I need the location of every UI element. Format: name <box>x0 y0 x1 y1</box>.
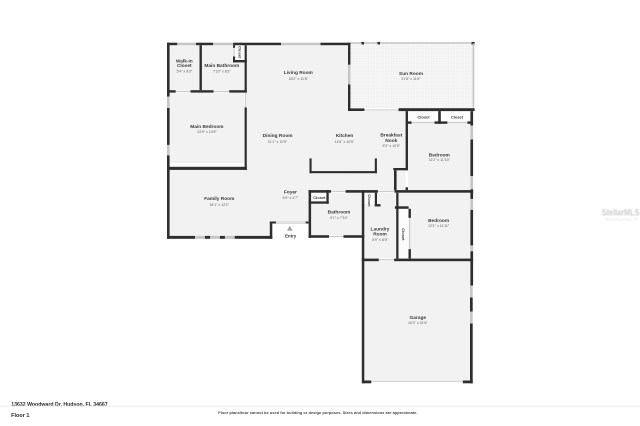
svg-text:18'1" x 12'1": 18'1" x 12'1" <box>209 203 229 207</box>
svg-text:StellarMLS: StellarMLS <box>605 217 638 222</box>
svg-text:9'1" x 7'10": 9'1" x 7'10" <box>330 216 348 220</box>
svg-text:Entry: Entry <box>285 233 297 238</box>
svg-text:11'1" x 10'9": 11'1" x 10'9" <box>268 140 288 144</box>
svg-text:Closet: Closet <box>451 115 464 120</box>
svg-text:5'4" x 8'3": 5'4" x 8'3" <box>176 70 192 74</box>
svg-text:Closet: Closet <box>237 46 242 59</box>
svg-text:13632 Woodward Dr, Hudson, FL: 13632 Woodward Dr, Hudson, FL 34667 <box>11 402 108 408</box>
svg-text:Dining Room: Dining Room <box>263 133 293 139</box>
svg-text:Floor 1: Floor 1 <box>11 413 29 419</box>
svg-text:Kitchen: Kitchen <box>336 133 354 139</box>
svg-text:Main Bathroom: Main Bathroom <box>204 63 239 69</box>
svg-text:Closet: Closet <box>417 115 430 120</box>
svg-text:11'2" x 11'10": 11'2" x 11'10" <box>429 158 451 162</box>
svg-text:Sun Room: Sun Room <box>399 71 423 77</box>
svg-text:Closet: Closet <box>313 195 326 200</box>
svg-text:12'1" x 11'11": 12'1" x 11'11" <box>428 224 450 228</box>
svg-text:Floor plans/tour cannot be use: Floor plans/tour cannot be used for buil… <box>218 411 417 415</box>
svg-text:Room: Room <box>373 231 387 237</box>
svg-text:Living Room: Living Room <box>284 70 313 76</box>
svg-text:Laundry: Laundry <box>371 226 390 232</box>
svg-text:13'9" x 13'5": 13'9" x 13'5" <box>197 130 217 134</box>
svg-text:5'3" x 10'9": 5'3" x 10'9" <box>382 144 400 148</box>
svg-text:Closet: Closet <box>177 63 192 69</box>
svg-text:Closet: Closet <box>401 228 406 241</box>
svg-text:Family Room: Family Room <box>204 196 234 202</box>
svg-text:Nook: Nook <box>385 138 397 144</box>
svg-text:5'9" x 8'9": 5'9" x 8'9" <box>372 238 388 242</box>
svg-text:Breakfast: Breakfast <box>380 133 402 139</box>
svg-text:11'6" x 10'9": 11'6" x 10'9" <box>335 140 355 144</box>
svg-text:StellarMLS: StellarMLS <box>602 207 640 217</box>
svg-text:6'9" x 4'7": 6'9" x 4'7" <box>283 196 299 200</box>
svg-text:18'2" x 11'8": 18'2" x 11'8" <box>289 77 309 81</box>
svg-text:Foyer: Foyer <box>284 189 297 195</box>
svg-text:Bedroom: Bedroom <box>428 218 449 224</box>
svg-text:Closet: Closet <box>367 194 372 207</box>
svg-text:19'3" x 21'8": 19'3" x 21'8" <box>408 321 428 325</box>
svg-text:7'10" x 8'3": 7'10" x 8'3" <box>213 70 231 74</box>
svg-text:Bathroom: Bathroom <box>328 210 351 216</box>
svg-text:21'8" x 11'8": 21'8" x 11'8" <box>401 77 421 81</box>
